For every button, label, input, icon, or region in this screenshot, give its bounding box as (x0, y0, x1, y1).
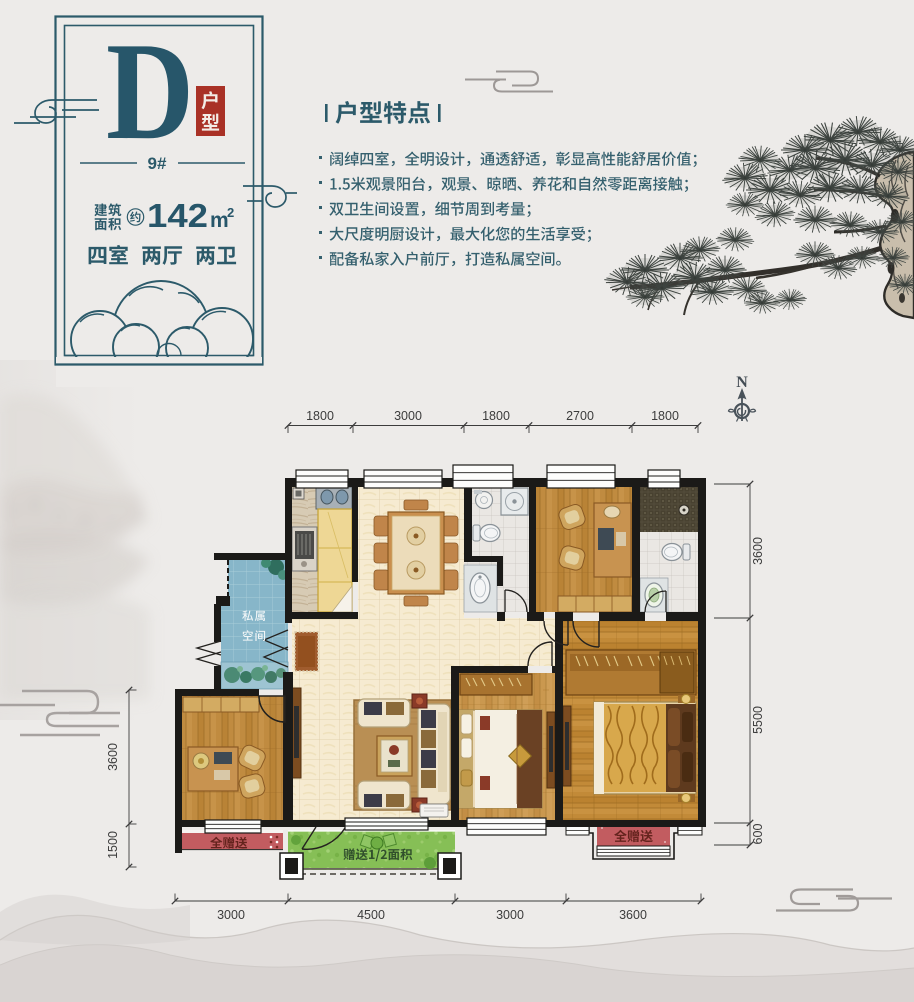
svg-text:1800: 1800 (306, 409, 334, 423)
svg-text:2: 2 (227, 205, 234, 220)
svg-text:3600: 3600 (106, 743, 120, 771)
svg-text:600: 600 (751, 824, 765, 845)
svg-text:3600: 3600 (751, 537, 765, 565)
svg-text:D: D (106, 14, 194, 169)
svg-text:N: N (736, 374, 748, 391)
svg-text:3600: 3600 (619, 908, 647, 922)
svg-text:3000: 3000 (217, 908, 245, 922)
svg-text:3000: 3000 (496, 908, 524, 922)
svg-text:4500: 4500 (357, 908, 385, 922)
svg-text:142: 142 (147, 197, 208, 234)
svg-text:9#: 9# (148, 154, 167, 173)
svg-text:1500: 1500 (106, 831, 120, 859)
svg-text:2700: 2700 (566, 409, 594, 423)
svg-text:m: m (210, 209, 229, 232)
svg-text:1800: 1800 (651, 409, 679, 423)
svg-text:5500: 5500 (751, 706, 765, 734)
svg-text:3000: 3000 (394, 409, 422, 423)
svg-text:1800: 1800 (482, 409, 510, 423)
